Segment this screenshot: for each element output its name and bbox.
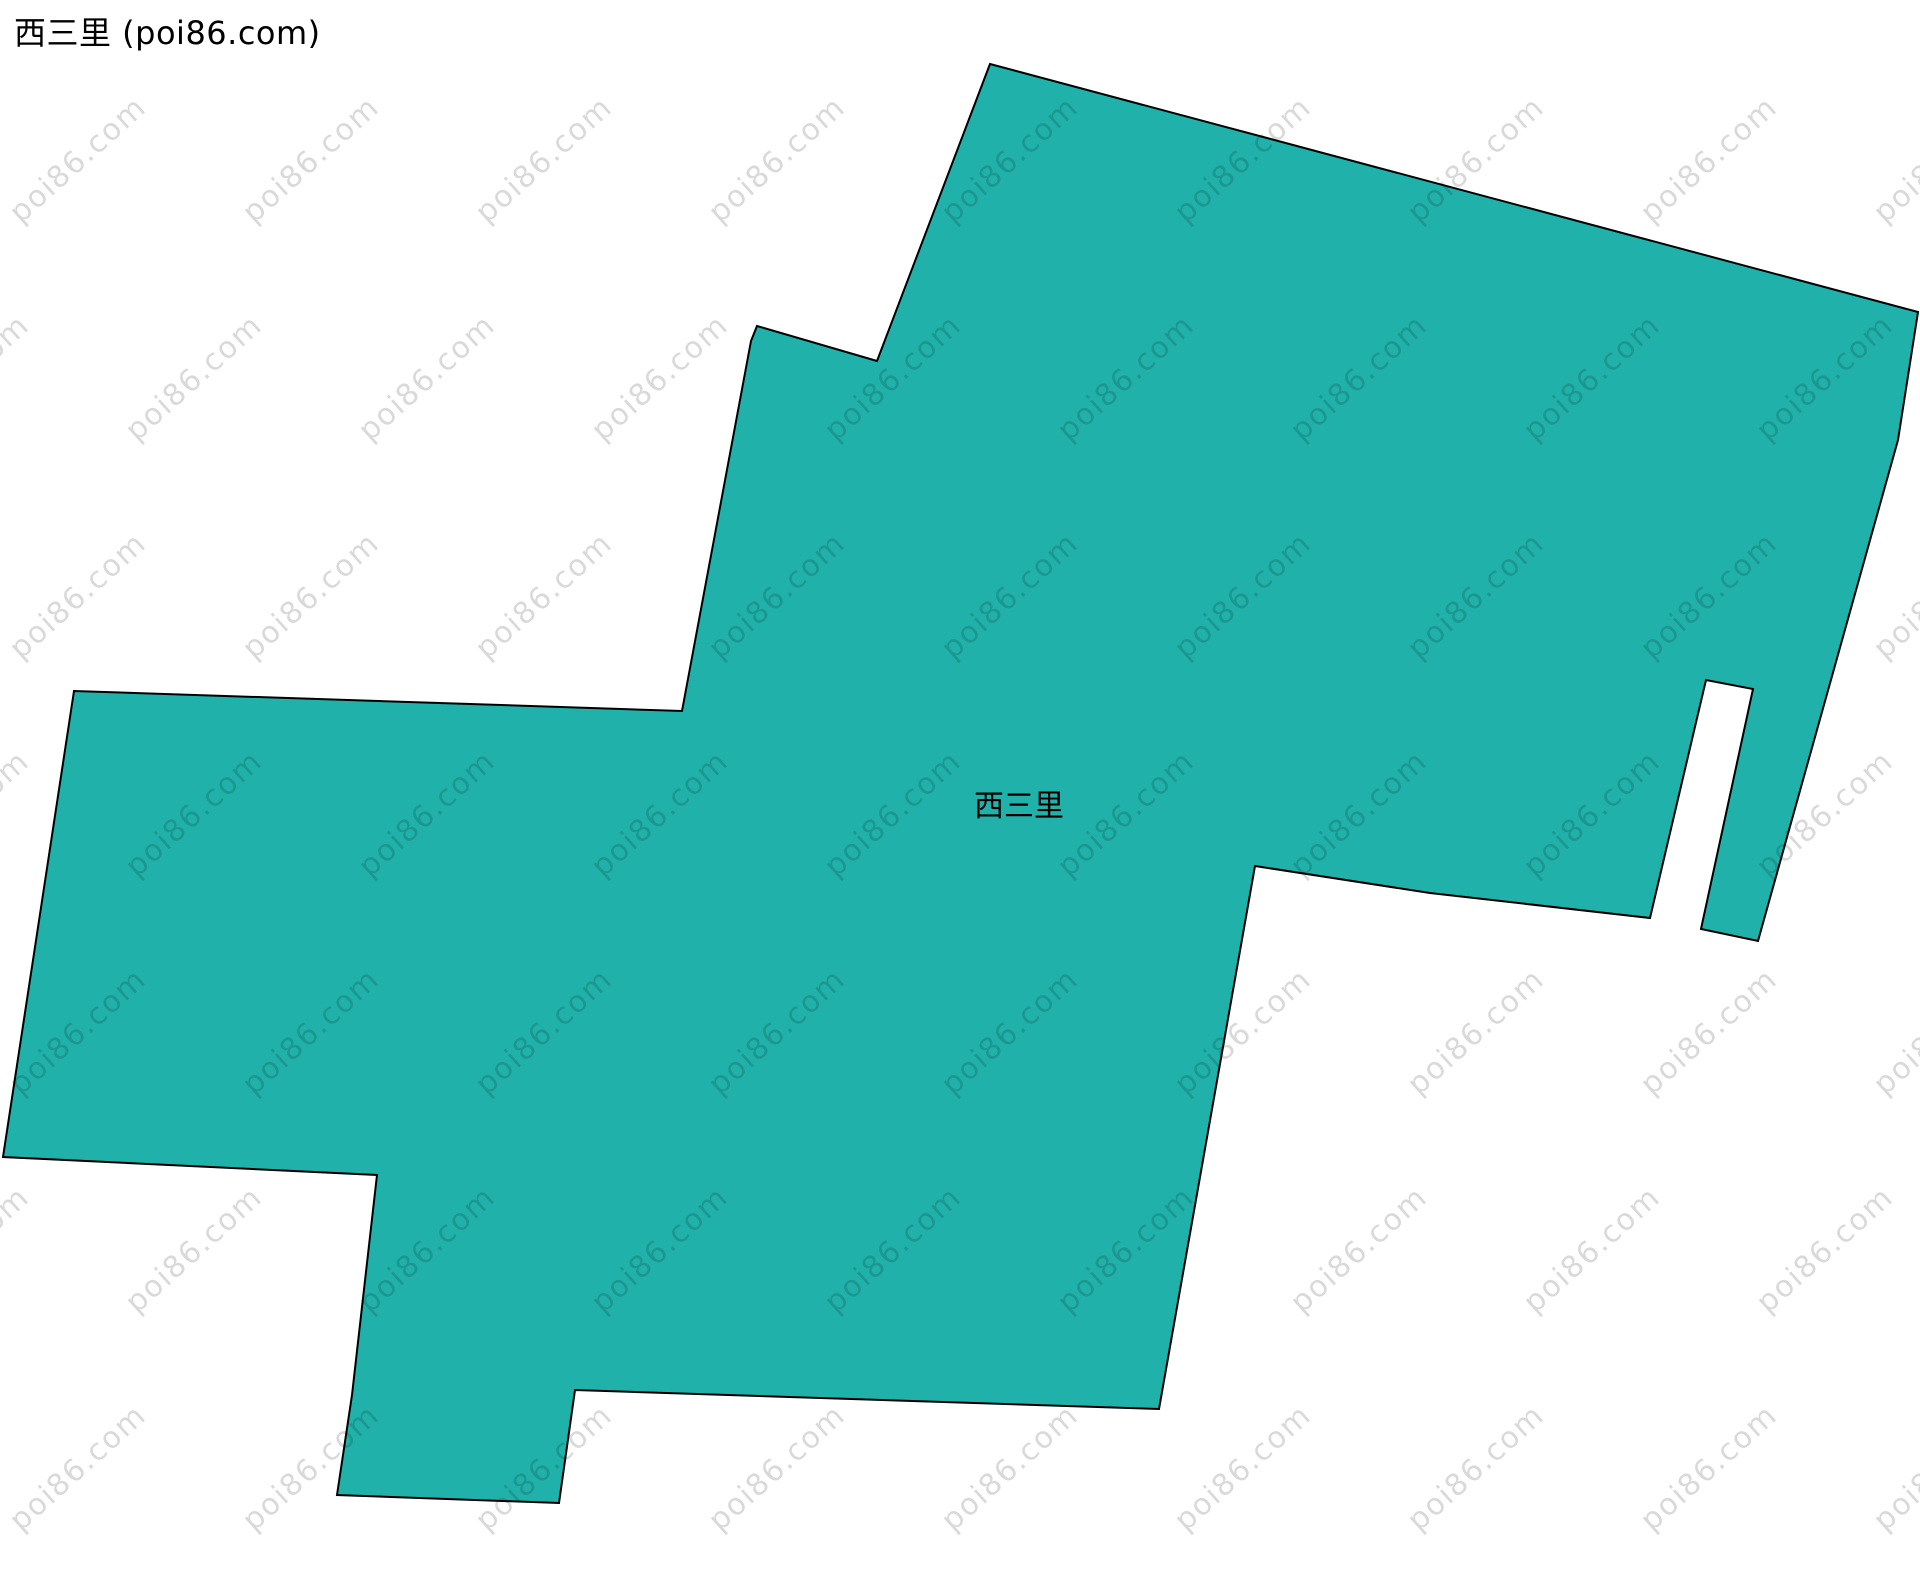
region-label: 西三里 bbox=[974, 789, 1064, 824]
boundary-map: 西三里 bbox=[0, 0, 1920, 1569]
map-page: 西三里 (poi86.com) 西三里 poi86.compoi86.compo… bbox=[0, 0, 1920, 1569]
region-boundary-polygon bbox=[3, 64, 1918, 1503]
page-title: 西三里 (poi86.com) bbox=[14, 8, 321, 54]
